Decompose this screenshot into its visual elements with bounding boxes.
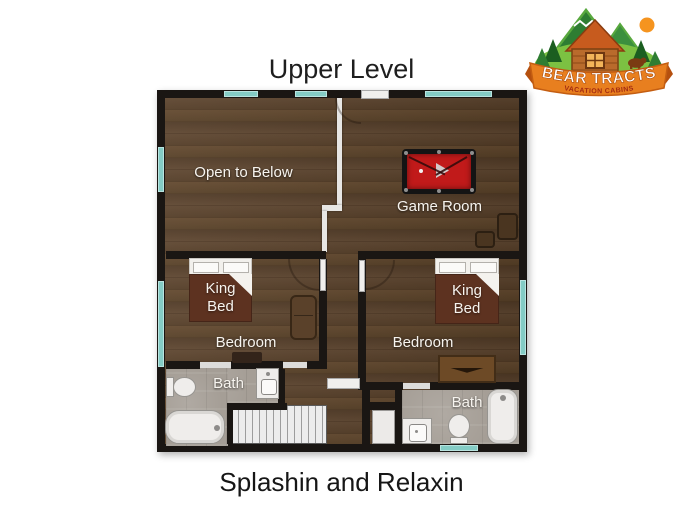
faucet-icon: [214, 425, 220, 431]
wall: [362, 390, 370, 444]
window: [158, 281, 164, 367]
wall: [362, 402, 402, 410]
chair: [475, 231, 495, 248]
chair: [497, 213, 518, 240]
room-label-bedroom-right: Bedroom: [358, 334, 488, 351]
stairs: [231, 405, 327, 444]
pillow-icon: [439, 262, 466, 273]
page: Upper Level BEAR TRA: [0, 0, 683, 512]
toilet-icon: [448, 414, 470, 438]
wall: [227, 403, 233, 444]
door: [327, 378, 360, 389]
door-threshold: [283, 362, 307, 368]
wall: [278, 369, 285, 403]
pillow-icon: [223, 262, 249, 273]
window: [224, 91, 258, 97]
room-label-bath-left: Bath: [187, 375, 270, 392]
faucet-icon: [415, 430, 418, 433]
pool-table: [402, 149, 476, 194]
dresser: [438, 355, 496, 383]
door: [361, 90, 389, 99]
bathtub: [165, 410, 225, 444]
sink-basin-icon: [409, 424, 427, 442]
window: [440, 445, 478, 451]
room-label-bath-right: Bath: [423, 394, 511, 411]
window: [425, 91, 492, 97]
sun-icon: [640, 18, 655, 33]
wall: [395, 390, 402, 444]
cue-ball-icon: [419, 169, 423, 173]
pillow-icon: [193, 262, 219, 273]
page-caption: Splashin and Relaxin: [0, 467, 683, 498]
wall: [366, 382, 403, 390]
railing: [322, 211, 327, 252]
toilet-tank-icon: [450, 437, 468, 444]
room-label-open-to-below: Open to Below: [166, 164, 321, 181]
wall: [227, 403, 287, 410]
room-label-bedroom-left: Bedroom: [166, 334, 326, 351]
shower-closet: [372, 410, 395, 444]
king-bed-label: King Bed: [198, 280, 244, 316]
door-threshold: [200, 362, 231, 368]
window: [295, 91, 327, 97]
pool-table-felt: [407, 154, 471, 189]
window: [158, 147, 164, 192]
sink-vanity: [402, 418, 432, 444]
bear-tracts-logo: BEAR TRACTS VACATION CABINS: [524, 4, 674, 107]
room-label-game-room: Game Room: [362, 198, 517, 215]
king-bed-label: King Bed: [444, 282, 490, 318]
window: [520, 280, 526, 355]
bench: [232, 352, 262, 363]
wall: [307, 361, 327, 369]
door-threshold: [403, 383, 430, 389]
floor-plan: King Bed King Bed: [157, 90, 527, 452]
pillow-icon: [470, 262, 497, 273]
door: [320, 259, 326, 291]
wall: [166, 361, 200, 369]
